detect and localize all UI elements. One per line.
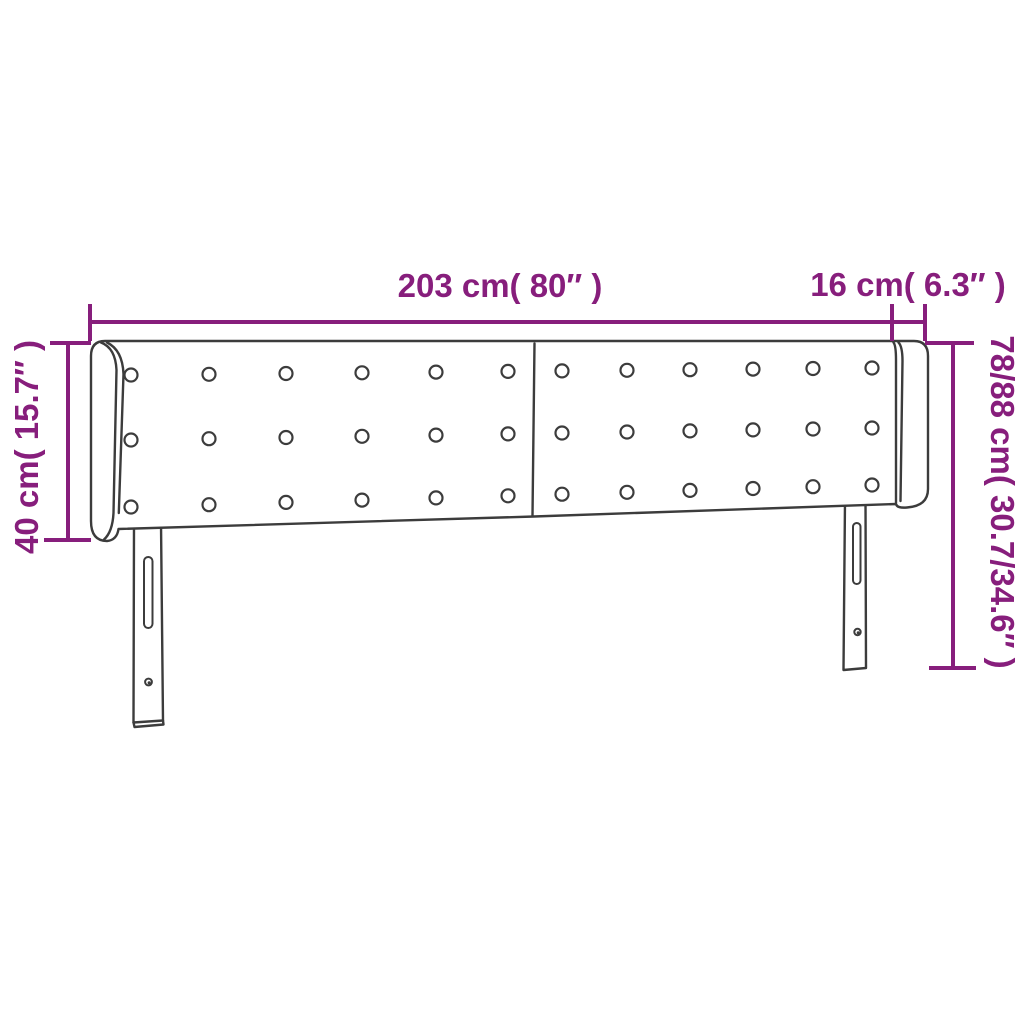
tufting-button [866, 362, 879, 375]
dimension-wing-width-line [892, 304, 925, 341]
dimension-total-width-line [90, 304, 892, 341]
right-leg-slot [853, 523, 861, 584]
tufting-button [502, 365, 515, 378]
dimension-wing-width: 16 cm( 6.3″ ) [810, 266, 1006, 341]
tufting-button [280, 431, 293, 444]
diagram-canvas: 203 cm( 80″ ) 16 cm( 6.3″ ) 40 cm( 15.7″… [0, 0, 1024, 1024]
tufting-button [125, 434, 138, 447]
right-leg-screw-dot [857, 631, 860, 634]
left-leg-slot [144, 557, 153, 628]
tufting-button [356, 494, 369, 507]
tufting-button [747, 423, 760, 436]
dimension-total-height-line [925, 343, 976, 668]
tufting-button [430, 366, 443, 379]
tufting-button [807, 362, 820, 375]
dimension-headboard-height: 40 cm( 15.7″ ) [8, 340, 91, 554]
tufting-button [747, 482, 760, 495]
tufting-button [356, 366, 369, 379]
tufting-button [203, 368, 216, 381]
left-leg [134, 523, 164, 727]
tufting-button [125, 369, 138, 382]
tufting-button [621, 486, 634, 499]
dimension-total-height: 78/88 cm( 30.7/34.6″ ) [925, 335, 1021, 668]
tufting-button [125, 501, 138, 514]
tufting-button [203, 498, 216, 511]
dimension-headboard-height-label: 40 cm( 15.7″ ) [8, 340, 45, 554]
dimension-total-width-label: 203 cm( 80″ ) [398, 267, 603, 304]
tufting-button [684, 424, 697, 437]
tufting-button [556, 364, 569, 377]
tufting-button [556, 427, 569, 440]
tufting-button [203, 432, 216, 445]
tufting-button [621, 426, 634, 439]
tufting-button [430, 429, 443, 442]
tufting-button [502, 427, 515, 440]
tufting-button [866, 422, 879, 435]
dimension-total-height-label: 78/88 cm( 30.7/34.6″ ) [984, 335, 1021, 668]
left-leg-screw-dot [148, 681, 151, 684]
right-leg [844, 499, 867, 670]
tufting-button [684, 484, 697, 497]
dimension-headboard-height-line [44, 343, 91, 540]
tufting-button [280, 367, 293, 380]
tufting-button [356, 430, 369, 443]
dimension-total-width: 203 cm( 80″ ) [90, 267, 892, 341]
headboard-dimension-diagram: 203 cm( 80″ ) 16 cm( 6.3″ ) 40 cm( 15.7″… [0, 0, 1024, 1024]
tufting-button [430, 491, 443, 504]
tufting-button [280, 496, 293, 509]
tufting-button [807, 423, 820, 436]
tufting-button [807, 480, 820, 493]
tufting-button [621, 364, 634, 377]
dimension-wing-width-label: 16 cm( 6.3″ ) [810, 266, 1006, 303]
tufting-button [684, 363, 697, 376]
tufting-button [747, 363, 760, 376]
tufting-button [502, 489, 515, 502]
tufting-button [556, 488, 569, 501]
tufting-button [866, 479, 879, 492]
